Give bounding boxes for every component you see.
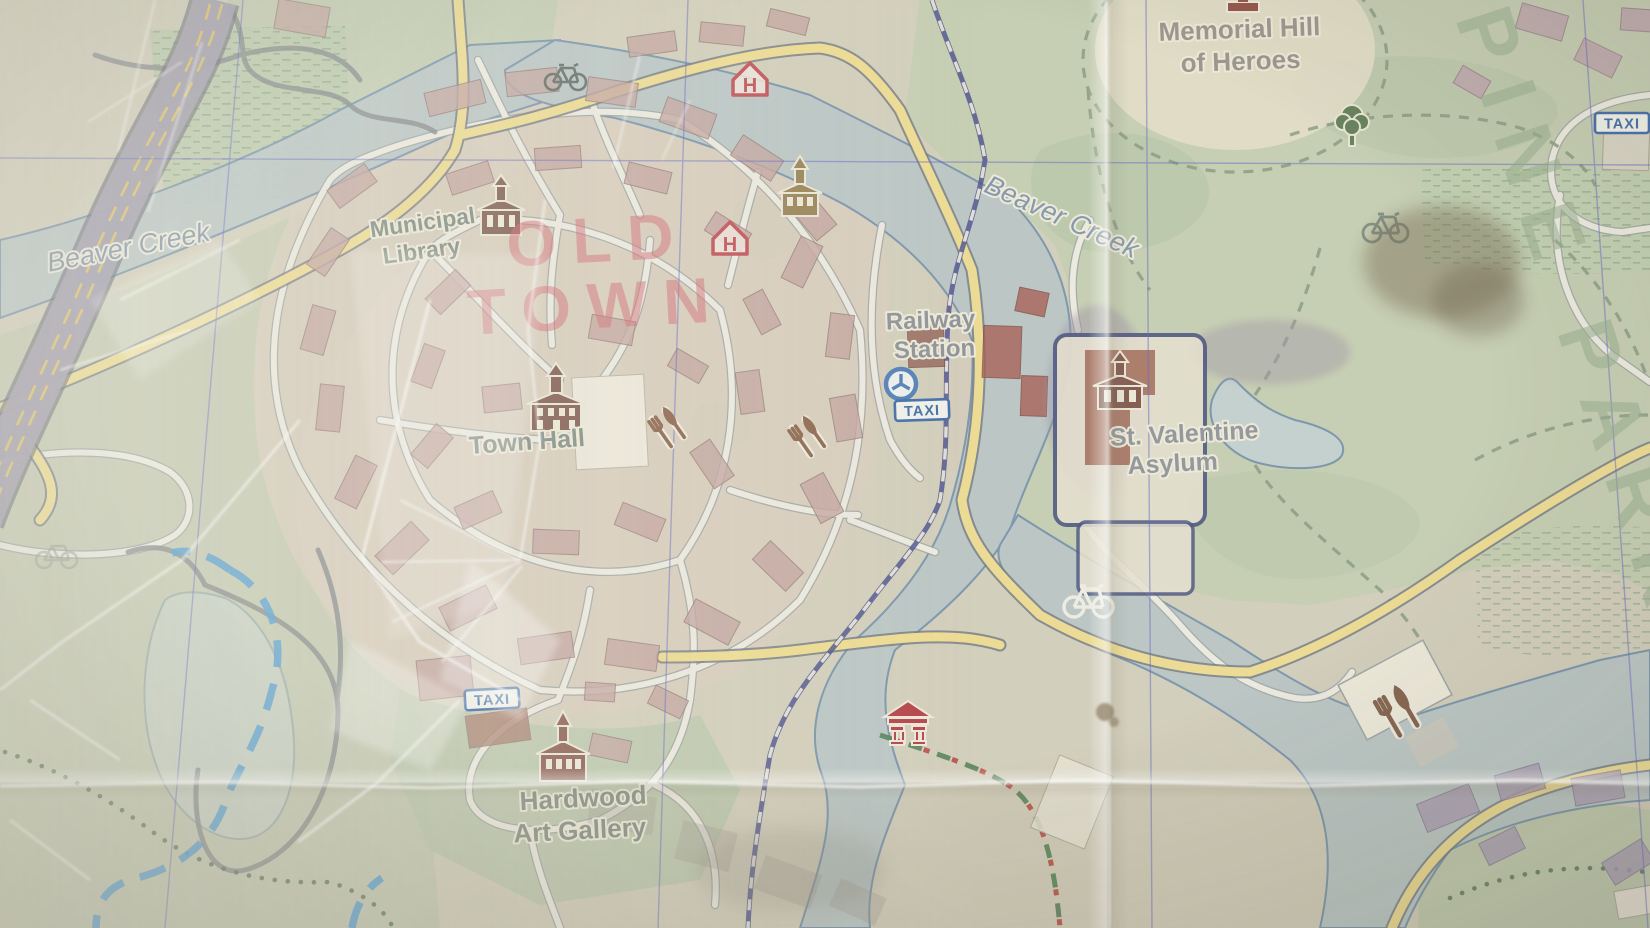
desat-overlay (0, 0, 1650, 928)
paper-map: H H (0, 0, 1650, 928)
